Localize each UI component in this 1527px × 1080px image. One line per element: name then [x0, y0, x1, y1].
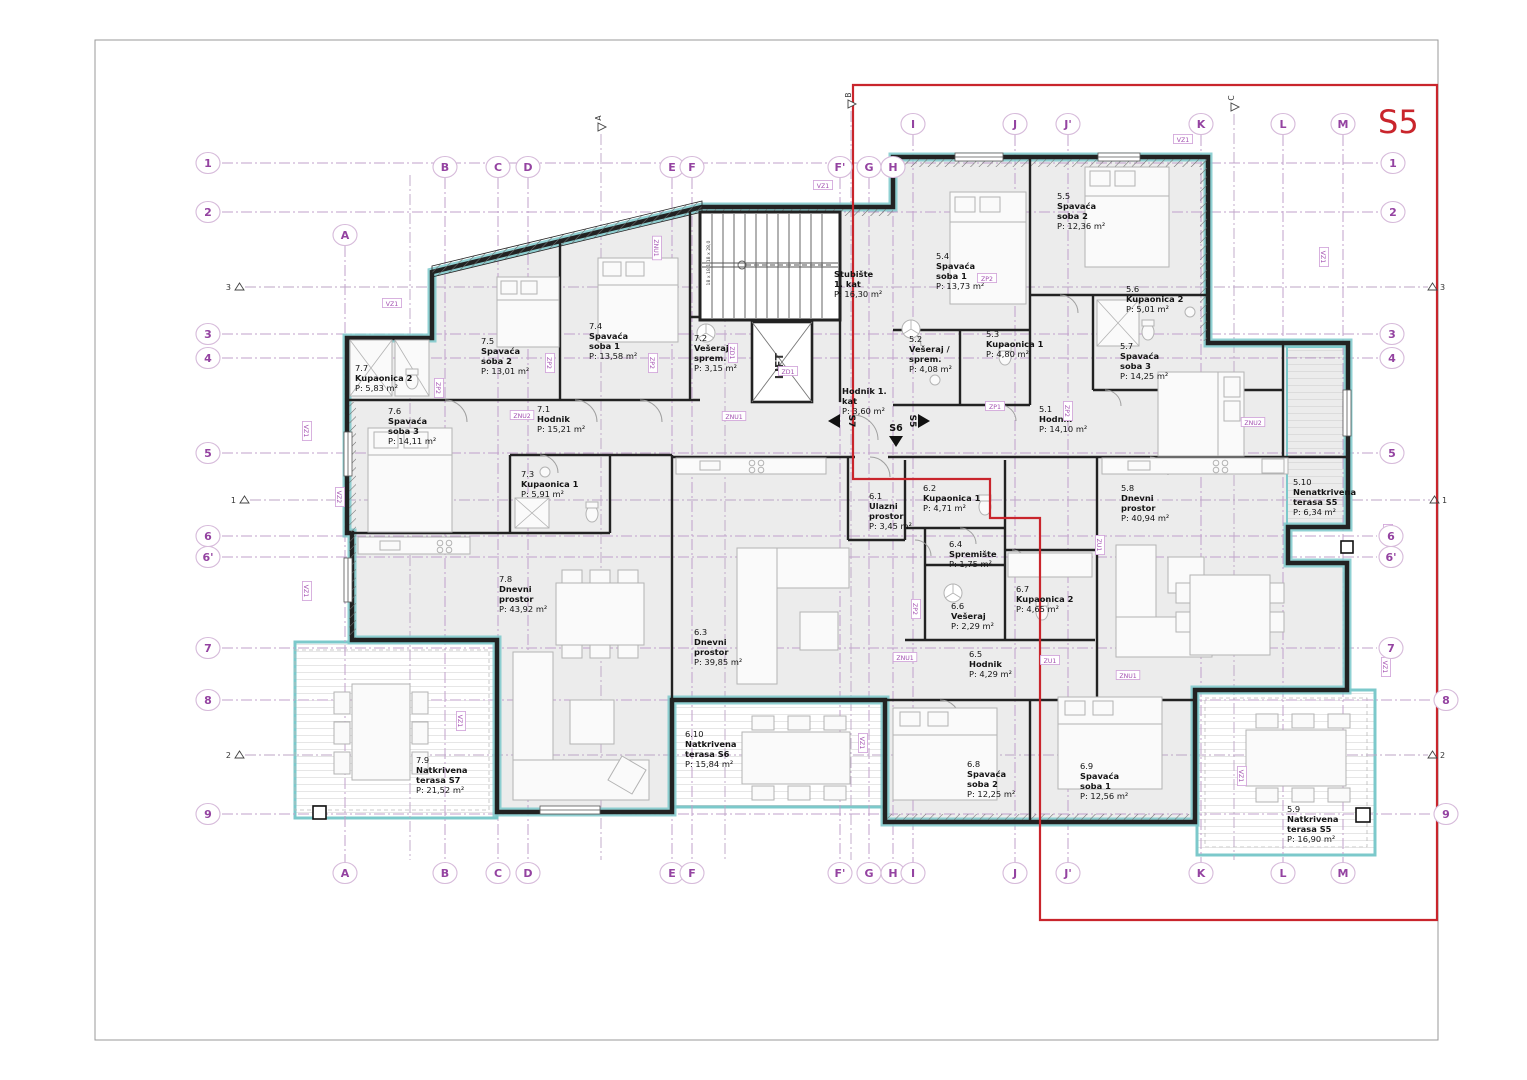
bed-5-5	[1085, 167, 1169, 267]
terrace-table-6-10	[742, 716, 850, 800]
grid-bubble-label: 5	[1388, 447, 1396, 460]
svg-text:ZD1: ZD1	[782, 369, 795, 376]
stair-dimensions-note: 18 x 18,1 18 x 28,0	[706, 240, 712, 285]
apartment-title: S5	[1378, 103, 1419, 141]
wall-code-VZ1: VZ1	[858, 733, 867, 752]
wall-code-VZ1: VZ1	[1381, 657, 1390, 676]
grid-bubble-label: L	[1279, 867, 1286, 880]
wall-hatch-right	[1200, 159, 1207, 341]
grid-bubble-label: 5	[204, 447, 212, 460]
svg-text:ZP2: ZP2	[545, 357, 552, 369]
svg-text:VZ1: VZ1	[858, 737, 865, 749]
cut-tri-left	[235, 751, 244, 758]
grid-bubble-label: C	[494, 161, 502, 174]
dining-7-8	[556, 570, 644, 658]
grid-bubble-label: 4	[1388, 352, 1396, 365]
cut-tri-right	[1428, 283, 1437, 290]
wall-code-ZNU2: ZNU2	[510, 411, 534, 420]
grid-bubble-label: F	[688, 161, 696, 174]
grid-bubble-label: 6	[204, 530, 212, 543]
cut-num-right-1: 1	[1442, 496, 1447, 505]
wall-code-VZ1: VZ1	[382, 299, 401, 308]
wall-code-ZNU1: ZNU1	[893, 653, 917, 662]
wall-code-VZ1: VZ1	[813, 181, 832, 190]
grid-bubble-label: 2	[204, 206, 212, 219]
svg-text:ZNU1: ZNU1	[652, 239, 659, 256]
grid-bubble-label: F'	[835, 161, 846, 174]
svg-text:ZU1: ZU1	[1095, 539, 1102, 552]
wall-code-VZ1: VZ1	[302, 421, 311, 440]
svg-text:VZ1: VZ1	[1319, 251, 1326, 263]
wall-code-ZP2: ZP2	[545, 353, 554, 372]
terrace-table-7-9	[334, 684, 428, 780]
grid-bubble-label: J	[1012, 867, 1017, 880]
section-flag-triangle	[598, 123, 606, 131]
grid-bubble-label: A	[341, 867, 350, 880]
svg-text:ZP2: ZP2	[648, 357, 655, 369]
svg-text:VZ1: VZ1	[302, 585, 309, 597]
grid-bubble-label: K	[1197, 867, 1206, 880]
wall-code-ZU1: ZU1	[1040, 656, 1059, 665]
grid-bubble-label: C	[494, 867, 502, 880]
section-flag-triangle	[1231, 103, 1239, 111]
grid-bubble-label: D	[523, 161, 532, 174]
svg-text:VZ1: VZ1	[1381, 661, 1388, 673]
kitchen-6-3	[676, 458, 826, 474]
svg-text:VZ1: VZ1	[456, 715, 463, 727]
grid-bubble-label: 3	[1388, 328, 1396, 341]
grid-bubble-label: G	[864, 867, 873, 880]
grid-bubble-label: E	[668, 867, 676, 880]
wall-code-ZD1: ZD1	[728, 343, 737, 362]
svg-text:ZP1: ZP1	[989, 404, 1001, 411]
wall-code-ZP1: ZP1	[985, 402, 1004, 411]
wall-code-ZNU1: ZNU1	[722, 412, 746, 421]
grid-bubble-label: H	[888, 161, 897, 174]
cut-tri-left	[240, 496, 249, 503]
bed-7-5	[497, 277, 559, 347]
grid-bubble-label: B	[441, 161, 449, 174]
floor-plan-canvas: LIFT 18 x 18,1 18 x 28,0	[0, 0, 1527, 1080]
svg-text:ZNU1: ZNU1	[1119, 673, 1136, 680]
wall-code-ZP2: ZP2	[911, 599, 920, 618]
grid-bubble-label: 6'	[1385, 551, 1396, 564]
bed-7-4	[598, 258, 678, 342]
floor-plan-page: LIFT 18 x 18,1 18 x 28,0	[0, 0, 1527, 1080]
svg-text:VZ1: VZ1	[1177, 137, 1189, 144]
grid-bubble-label: B	[441, 867, 449, 880]
svg-text:ZNU2: ZNU2	[513, 413, 530, 420]
entry-label-S6: S6	[889, 423, 903, 434]
section-flag-letter-A: A	[594, 115, 603, 121]
svg-text:ZP2: ZP2	[1063, 405, 1070, 417]
grid-bubble-label: J	[1012, 118, 1017, 131]
grid-bubble-label: 7	[204, 642, 212, 655]
grid-bubble-label: 7	[1387, 642, 1395, 655]
wall-code-VZ1: VZ1	[1237, 766, 1246, 785]
wall-code-ZP2: ZP2	[1063, 401, 1072, 420]
wall-code-VZ1: VZ1	[1319, 247, 1328, 266]
grid-bubble-label: G	[864, 161, 873, 174]
grid-bubble-label: 1	[204, 157, 212, 170]
entry-label-S7: S7	[846, 415, 856, 428]
svg-text:ZP2: ZP2	[911, 603, 918, 615]
section-flag-letter-B: B	[844, 92, 853, 97]
grid-bubble-label: 9	[204, 808, 212, 821]
terrace-table-5-9	[1246, 714, 1350, 802]
kitchen-7-8	[358, 537, 470, 554]
svg-text:VZ1: VZ1	[817, 183, 829, 190]
section-flag-letter-C: C	[1227, 95, 1236, 100]
grid-bubble-label: M	[1338, 118, 1349, 131]
svg-text:VZ2: VZ2	[335, 491, 342, 503]
cut-num-right-2: 2	[1440, 751, 1445, 760]
cut-tri-left	[235, 283, 244, 290]
cut-num-right-3: 3	[1440, 283, 1445, 292]
grid-bubble-label: I	[911, 867, 915, 880]
wall-code-ZNU1: ZNU1	[1116, 671, 1140, 680]
grid-bubble-label: H	[888, 867, 897, 880]
svg-text:VZ1: VZ1	[302, 425, 309, 437]
grid-bubble-label: 1	[1389, 157, 1397, 170]
svg-text:ZP2: ZP2	[434, 382, 441, 394]
wall-code-ZU1: ZU1	[1095, 535, 1104, 554]
wall-code-ZNU1: ZNU1	[652, 236, 661, 260]
wall-code-ZNU2: ZNU2	[1241, 418, 1265, 427]
entry-label-S5: S5	[907, 415, 917, 428]
grid-bubble-label: 9	[1442, 808, 1450, 821]
svg-text:ZNU1: ZNU1	[896, 655, 913, 662]
grid-bubble-label: 4	[204, 352, 212, 365]
wall-code-VZ1: VZ1	[1173, 135, 1192, 144]
svg-text:ZNU2: ZNU2	[1244, 420, 1261, 427]
grid-bubble-label: 2	[1389, 206, 1397, 219]
cut-num-left-3: 3	[226, 283, 231, 292]
cut-num-left-2: 2	[226, 751, 231, 760]
grid-bubble-label: I	[911, 118, 915, 131]
shower-7-3	[515, 498, 549, 528]
svg-text:ZP2: ZP2	[981, 276, 993, 283]
grid-bubble-label: 6'	[202, 551, 213, 564]
wall-code-ZP2: ZP2	[977, 274, 996, 283]
grid-bubble-label: D	[523, 867, 532, 880]
grid-bubble-label: F'	[835, 867, 846, 880]
svg-text:VZ1: VZ1	[1237, 770, 1244, 782]
svg-text:ZNU1: ZNU1	[725, 414, 742, 421]
grid-bubble-label: J'	[1063, 867, 1071, 880]
grid-bubble-label: K	[1197, 118, 1206, 131]
svg-text:ZU1: ZU1	[1044, 658, 1057, 665]
grid-bubble-label: 8	[1442, 694, 1450, 707]
cut-num-left-1: 1	[231, 496, 236, 505]
grid-bubble-label: L	[1279, 118, 1286, 131]
grid-bubble-label: F	[688, 867, 696, 880]
grid-bubble-label: E	[668, 161, 676, 174]
bed-5-7	[1158, 372, 1244, 456]
wall-code-ZP2: ZP2	[434, 378, 443, 397]
grid-bubble-label: 3	[204, 328, 212, 341]
wall-code-VZ2: VZ2	[335, 487, 344, 506]
grid-bubble-label: 8	[204, 694, 212, 707]
wall-code-VZ1: VZ1	[302, 581, 311, 600]
stairwell	[700, 212, 840, 320]
wall-hatch-top-right	[895, 159, 1206, 167]
wall-code-VZ1: VZ1	[456, 711, 465, 730]
grid-bubble-label: J'	[1063, 118, 1071, 131]
dining-5-8	[1176, 575, 1284, 655]
grid-bubble-label: 6	[1387, 530, 1395, 543]
wall-code-ZD1: ZD1	[778, 367, 797, 376]
svg-text:ZD1: ZD1	[728, 347, 735, 360]
svg-text:VZ1: VZ1	[386, 301, 398, 308]
kitchen-5-8	[1102, 458, 1288, 474]
grid-bubble-label: M	[1338, 867, 1349, 880]
cut-tri-right	[1428, 751, 1437, 758]
wall-code-ZP2: ZP2	[648, 353, 657, 372]
grid-bubble-label: A	[341, 229, 350, 242]
